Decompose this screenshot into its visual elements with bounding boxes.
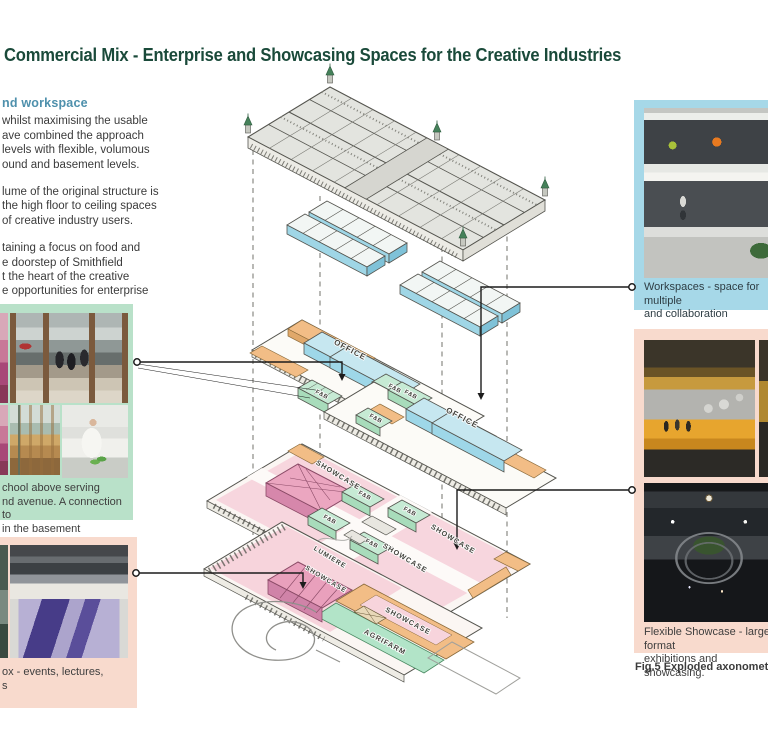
- events-hall-photo: [10, 545, 128, 658]
- diagram-label-office-lower: OFFICE: [444, 406, 479, 431]
- paragraph: lume of the original structure is the hi…: [2, 185, 182, 228]
- workspaces-panel: Workspaces - space for multiple and coll…: [634, 100, 768, 310]
- diagram-label-fnb-mid-2: F&B: [368, 413, 383, 425]
- diagram-label-fnb-upper: F&B: [387, 383, 402, 395]
- restaurant-photo: [10, 405, 60, 475]
- cooking-school-photo: [10, 313, 128, 403]
- diagram-label-showcase-ground-3: SHOWCASE: [381, 541, 429, 575]
- diagram-label-fnb-ground-1: F&B: [357, 490, 372, 502]
- figure-caption: Fig.5 Exploded axonometric of pre: [635, 661, 768, 673]
- events-photo-fragment: [0, 545, 8, 658]
- workspaces-caption: Workspaces - space for multiple and coll…: [644, 281, 768, 322]
- diagram-label-fnb-mid-1: F&B: [403, 389, 418, 401]
- food-school-photo-fragment: [0, 313, 8, 403]
- food-school-caption: chool above serving nd avenue. A connect…: [2, 482, 130, 536]
- ground-floor-plate: [207, 444, 530, 628]
- diagram-label-showcase-ground-2: SHOWCASE: [429, 522, 477, 556]
- chef-photo: [62, 405, 128, 478]
- diagram-label-agrifarm: AGRIFARM: [363, 627, 408, 657]
- diagram-label-office-upper: OFFICE: [332, 338, 367, 363]
- food-school-photo-fragment: [0, 405, 8, 475]
- section-heading: nd workspace: [2, 96, 182, 110]
- events-box-panel: ox - events, lectures, s: [0, 537, 137, 708]
- construction-lines: [253, 150, 507, 650]
- market-roof: [244, 64, 549, 262]
- connector-nodes: [133, 284, 635, 576]
- paragraph: taining a focus on food and e doorstep o…: [2, 241, 182, 299]
- diagram-label-fnb-ground-2: F&B: [322, 514, 337, 526]
- page-title: Commercial Mix - Enterprise and Showcasi…: [4, 45, 621, 66]
- workspaces-photo: [644, 108, 768, 278]
- intro-text-column: nd workspace whilst maximising the usabl…: [2, 96, 182, 312]
- flexible-showcase-panel: Flexible Showcase - large format exhibit…: [634, 329, 768, 653]
- annotation-connectors: [136, 287, 632, 582]
- events-box-caption: ox - events, lectures, s: [2, 666, 130, 693]
- paragraph: whilst maximising the usable ave combine…: [2, 114, 182, 172]
- diagram-labels: OFFICE F&B F&B OFFICE F&B F&B SHOWCASE S…: [304, 338, 480, 657]
- portfolio-page: Commercial Mix - Enterprise and Showcasi…: [0, 0, 768, 750]
- fnb-target-box: [298, 380, 342, 414]
- diagram-label-fnb-ground-4: F&B: [364, 538, 379, 550]
- food-school-panel: chool above serving nd avenue. A connect…: [0, 304, 133, 520]
- diagram-label-showcase-basement-1: SHOWCASE: [304, 565, 348, 595]
- upper-floor-plate-2: [324, 382, 556, 515]
- diagram-label-fnb-ground-3: F&B: [402, 506, 417, 518]
- rooftop-volumes: [287, 201, 520, 336]
- diagram-label-showcase-ground-1: SHOWCASE: [314, 458, 362, 492]
- diagram-label-lumiere: LUMIERE: [312, 545, 347, 570]
- diagram-label-showcase-basement-2: SHOWCASE: [384, 605, 433, 637]
- connector-arrowheads: [300, 374, 485, 589]
- showcase-hall-photo: [644, 483, 768, 622]
- fashion-show-photo-fragment: [759, 340, 768, 477]
- diagram-label-fnb-upper-target: F&B: [314, 389, 329, 401]
- fashion-show-photo: [644, 340, 755, 477]
- upper-floor-plate-1: [250, 320, 484, 453]
- basement-plate: [204, 522, 520, 694]
